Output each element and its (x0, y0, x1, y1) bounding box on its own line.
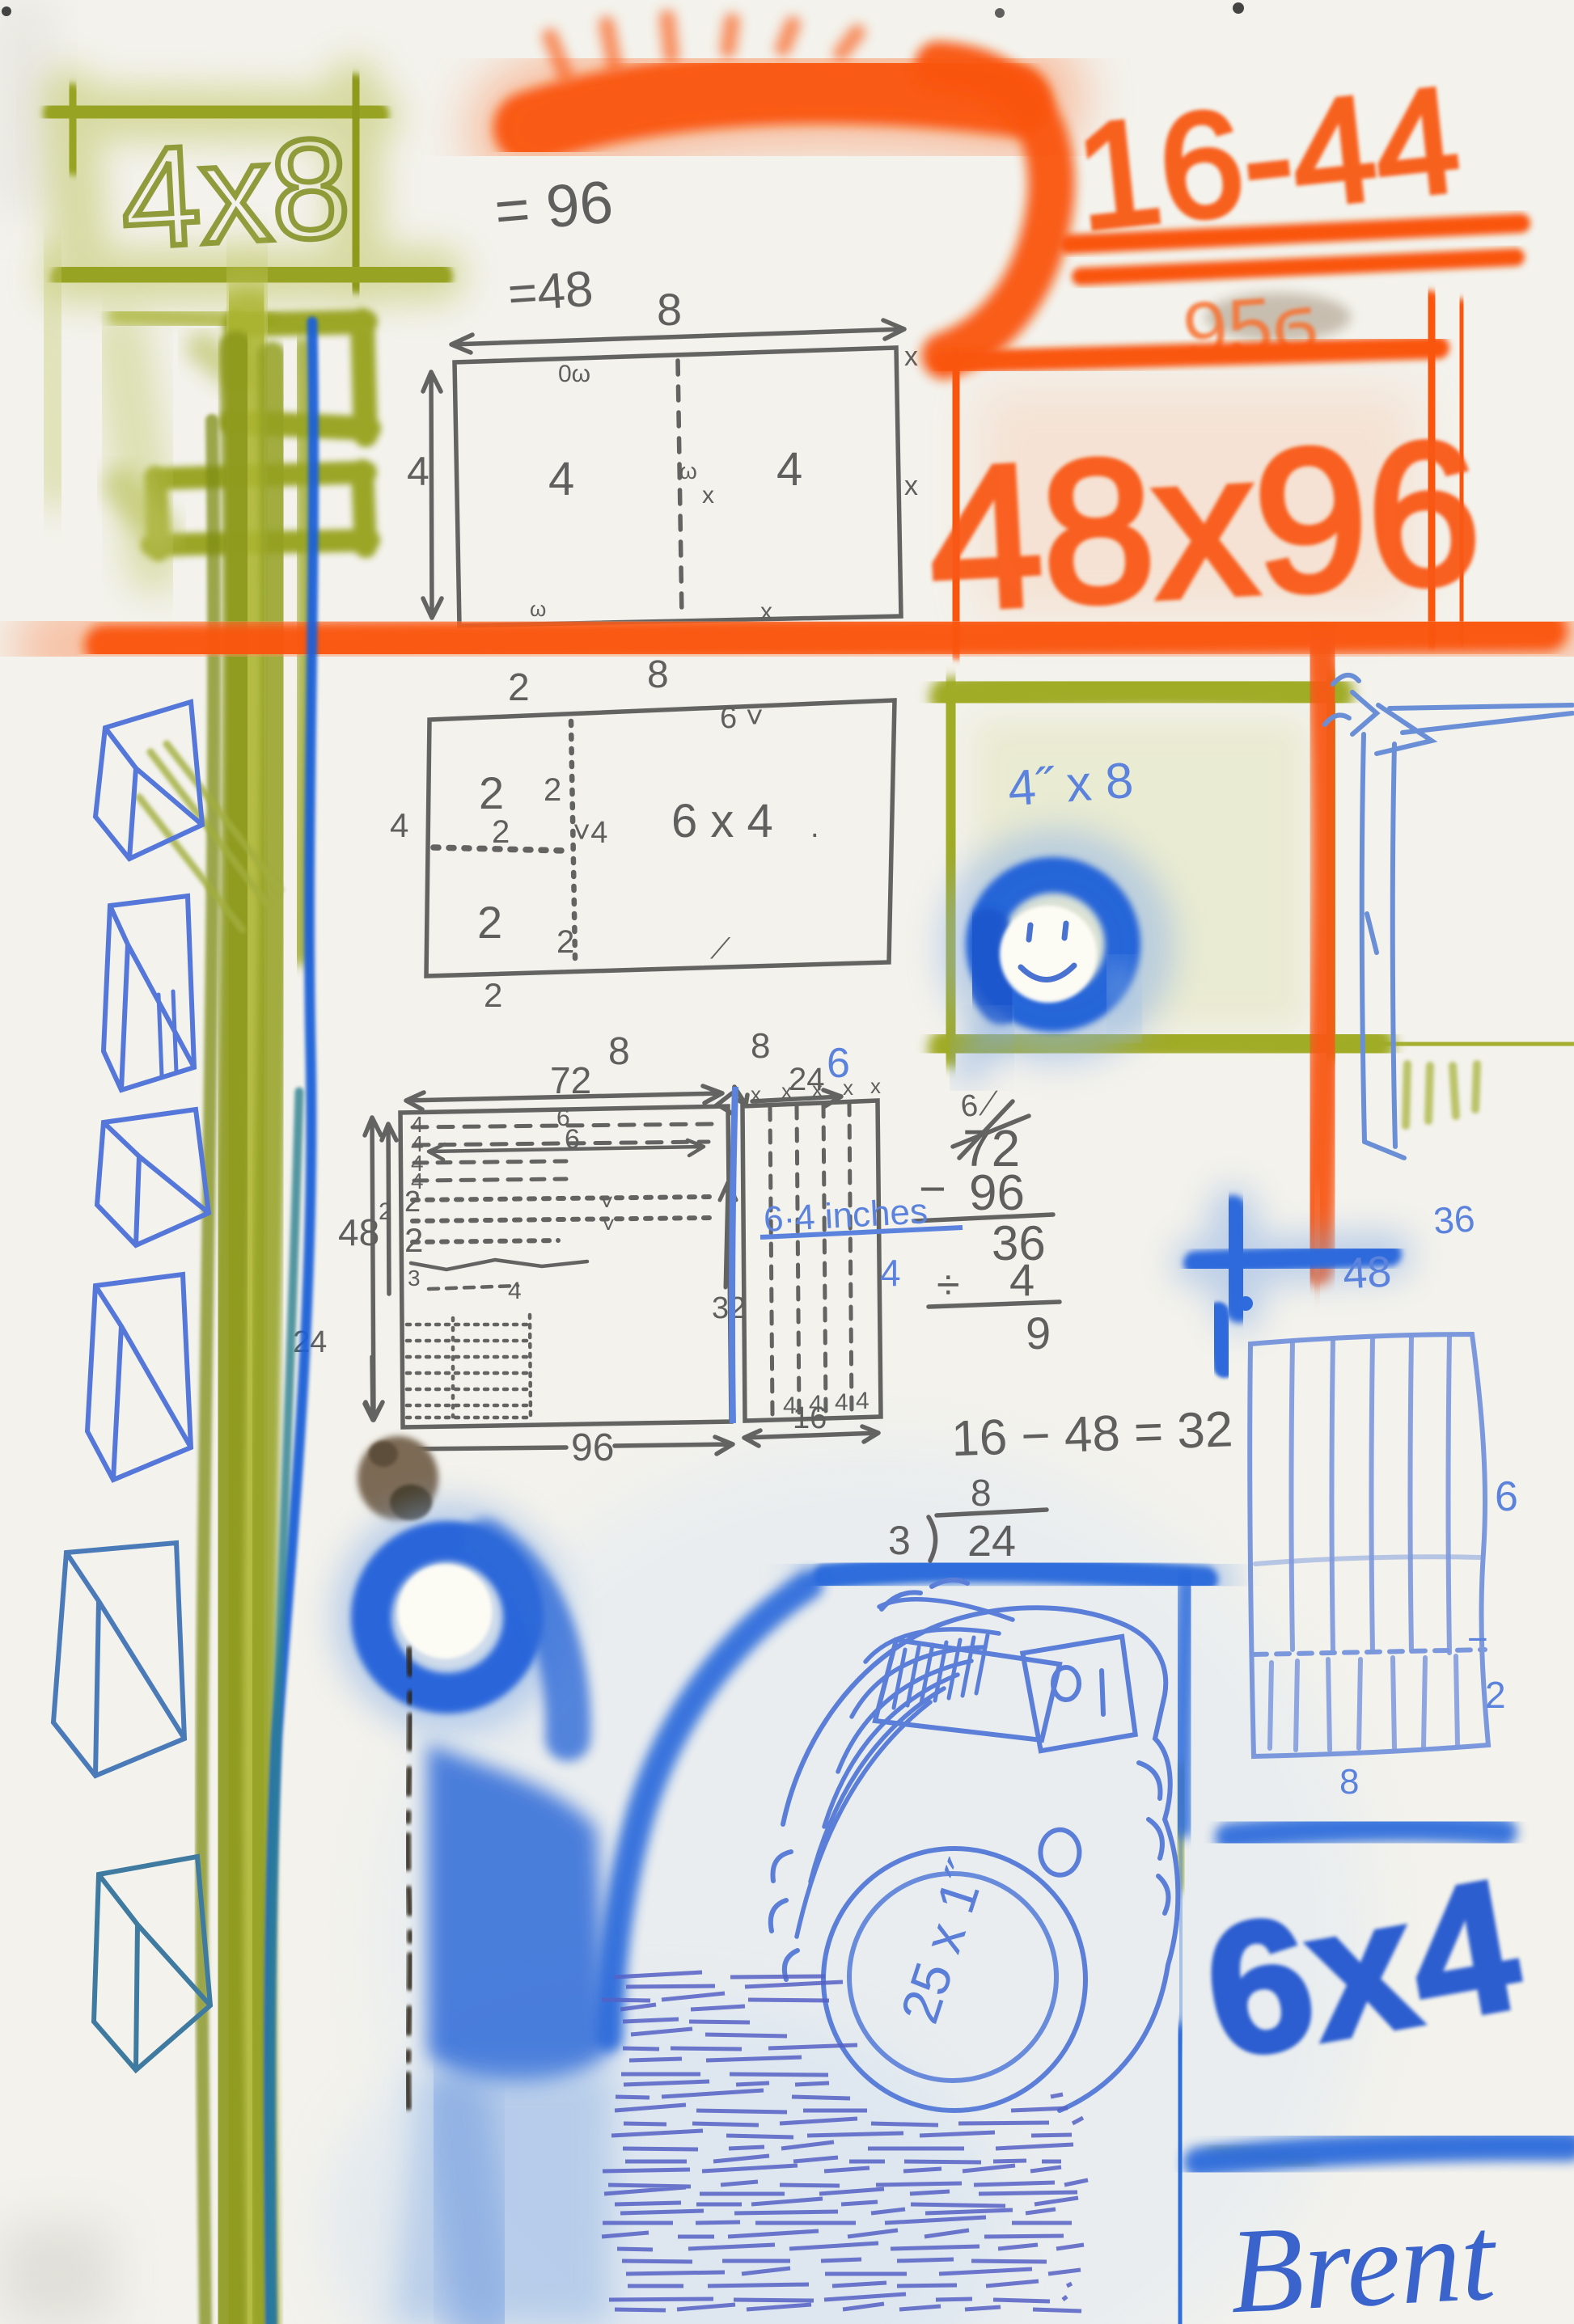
svg-text:0ω: 0ω (558, 361, 590, 387)
svg-text:x: x (904, 471, 918, 501)
svg-text:4: 4 (548, 453, 574, 505)
svg-text:4: 4 (856, 1388, 870, 1414)
svg-text:48: 48 (1342, 1247, 1393, 1298)
svg-text:4: 4 (1009, 1254, 1035, 1305)
svg-text:2: 2 (479, 767, 504, 818)
svg-text:36: 36 (1432, 1197, 1476, 1241)
svg-text:x: x (702, 482, 714, 509)
svg-text:9: 9 (1026, 1308, 1051, 1358)
svg-text:6 ˅: 6 ˅ (720, 701, 764, 735)
svg-text:4: 4 (508, 1278, 522, 1304)
svg-text:x: x (781, 1079, 792, 1103)
svg-text:4x8: 4x8 (117, 109, 353, 278)
svg-text:8: 8 (657, 284, 682, 335)
svg-text:2: 2 (1485, 1674, 1506, 1716)
svg-text:4: 4 (835, 1389, 848, 1416)
svg-text:˅: ˅ (600, 1189, 613, 1215)
svg-text:ω: ω (679, 458, 697, 484)
svg-text:2: 2 (492, 814, 510, 850)
svg-text:16 − 48 = 32: 16 − 48 = 32 (950, 1401, 1233, 1467)
svg-text:48: 48 (338, 1211, 379, 1253)
svg-text:3: 3 (408, 1266, 421, 1291)
svg-text:6 x 4: 6 x 4 (671, 795, 773, 847)
svg-text:˅4: ˅4 (573, 816, 607, 850)
svg-text:4˝ x 8: 4˝ x 8 (1006, 753, 1135, 818)
svg-text:˅: ˅ (602, 1212, 615, 1237)
svg-text:2: 2 (484, 976, 502, 1014)
svg-text:16: 16 (793, 1401, 827, 1435)
svg-text:4: 4 (407, 449, 429, 494)
svg-text:4: 4 (776, 443, 802, 496)
svg-text:96: 96 (571, 1426, 614, 1469)
svg-text:2: 2 (404, 1185, 421, 1218)
svg-text:6: 6 (827, 1040, 850, 1087)
svg-text:8: 8 (971, 1472, 992, 1514)
svg-text:.: . (810, 810, 819, 844)
svg-text:8: 8 (1339, 1762, 1359, 1802)
svg-text:6: 6 (565, 1124, 580, 1155)
svg-text:2: 2 (477, 897, 502, 948)
svg-text:x: x (751, 1082, 761, 1106)
svg-text:=48: =48 (506, 261, 595, 323)
svg-text:2: 2 (379, 1198, 392, 1225)
svg-text:÷: ÷ (937, 1261, 960, 1308)
svg-text:−: − (1467, 1620, 1488, 1659)
svg-text:2: 2 (544, 772, 561, 808)
svg-text:96: 96 (969, 1165, 1025, 1221)
svg-text:x: x (812, 1077, 823, 1101)
svg-text:4: 4 (390, 806, 408, 844)
svg-text:⟋: ⟋ (710, 932, 731, 965)
svg-text:2: 2 (404, 1221, 423, 1259)
svg-text:4: 4 (880, 1252, 901, 1294)
svg-text:x: x (904, 341, 918, 372)
svg-text:Brent: Brent (1226, 2191, 1500, 2324)
svg-text:8: 8 (751, 1026, 770, 1066)
svg-text:72: 72 (550, 1059, 591, 1101)
svg-text:8: 8 (608, 1030, 630, 1073)
svg-text:2: 2 (556, 924, 574, 960)
svg-text:x: x (870, 1074, 881, 1098)
svg-text:6: 6 (1495, 1473, 1518, 1520)
